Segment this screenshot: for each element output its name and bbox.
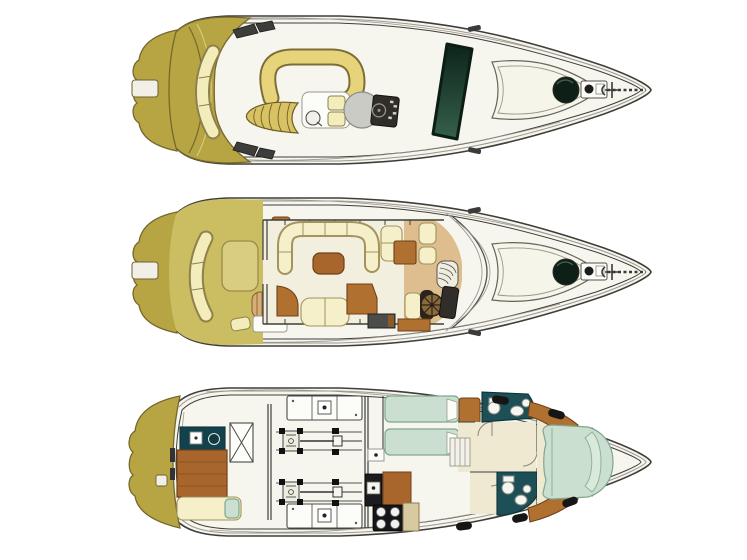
dinette-seat [419,247,436,264]
master-island-bed [543,425,613,499]
galley-floor [383,472,411,505]
sink-icon [511,406,524,416]
helm-seat [405,293,421,319]
cabin-wood-floor [459,398,480,424]
companionway-steps [437,261,458,288]
head-port [482,392,535,422]
yacht-deck-plans [0,0,747,560]
deck-plans-canvas [0,0,747,560]
flybridge-wet-bar [302,92,350,128]
steps-icon [170,448,175,462]
tv-cabinet [368,314,395,328]
helm-step [398,319,430,331]
ladder-box [230,423,253,462]
fuel-tank [287,504,362,528]
companionway-stairs [450,438,470,466]
basin-icon [209,434,220,445]
sink-icon [515,495,527,505]
berth-pillow [225,499,239,518]
stove [373,505,403,531]
toilet-icon [502,482,514,494]
steps-icon [170,468,175,480]
galley-cabinet [403,503,419,531]
dinette-table [394,241,416,264]
helm-bench-cushion [328,96,345,110]
berth-pillow [447,399,457,421]
main-deck-plan [132,198,651,346]
salon-cabinet-fwd [347,284,377,314]
flybridge-helm-station [344,92,399,128]
salon-coffee-table [313,253,344,274]
flybridge-plan [132,16,651,164]
toilet-icon [488,402,500,414]
galley [365,472,419,531]
cockpit-hatch [222,241,258,291]
dinette-seat [419,223,436,244]
lower-deck-plan [129,388,651,536]
fuel-tank [287,396,362,420]
helm-bench-cushion [328,112,345,126]
